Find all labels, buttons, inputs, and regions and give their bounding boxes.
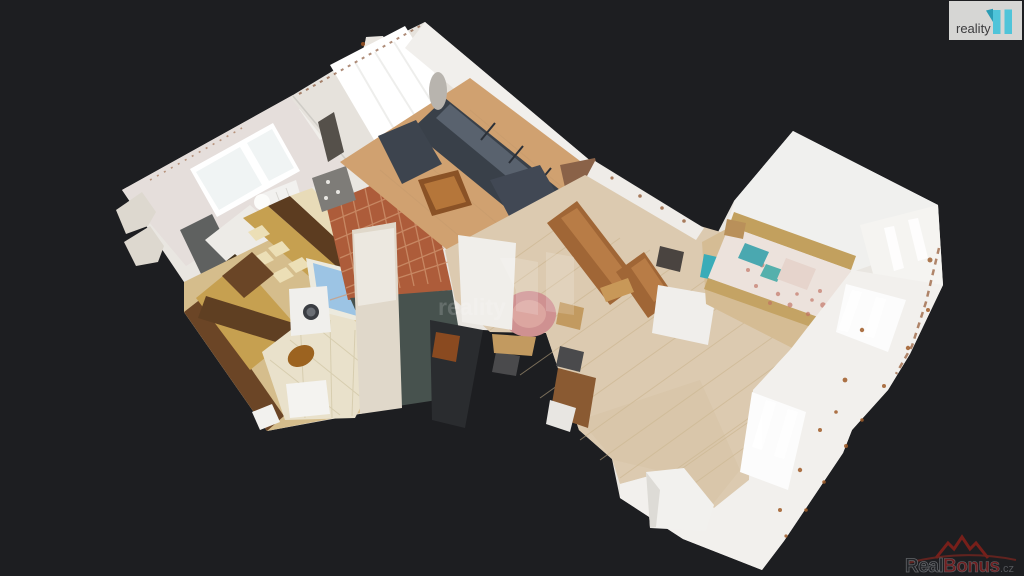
svg-text:.cz: .cz xyxy=(1000,563,1014,575)
svg-text:Bonus: Bonus xyxy=(943,556,1000,576)
svg-text:Real: Real xyxy=(905,556,943,576)
svg-text:reality: reality xyxy=(956,21,991,36)
svg-text:reality: reality xyxy=(438,294,506,320)
